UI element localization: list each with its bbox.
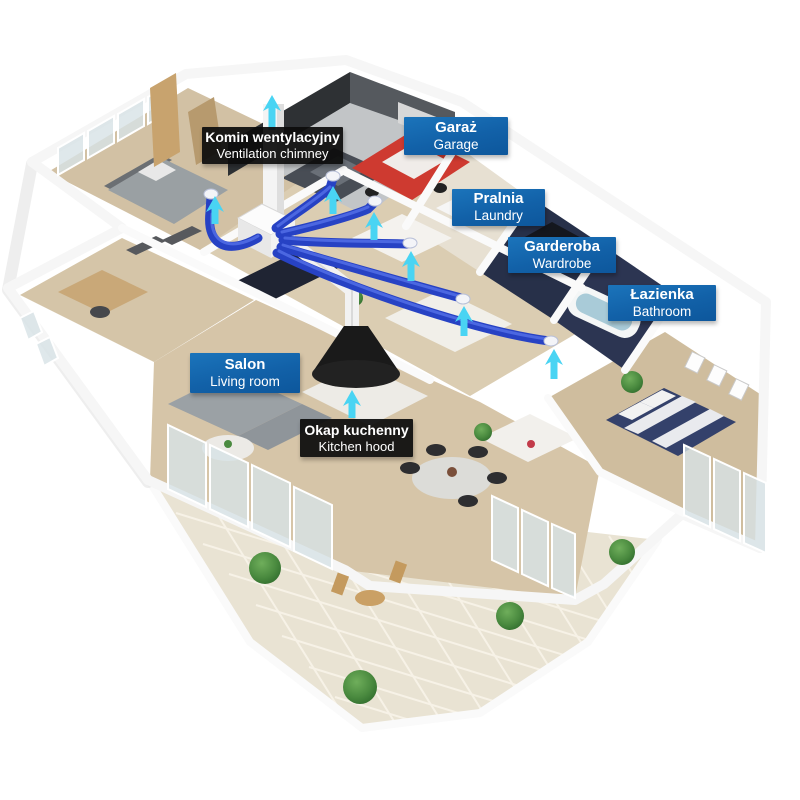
bathroom-label-pl: Łazienka <box>630 286 693 304</box>
bathroom-label-en: Bathroom <box>633 304 692 320</box>
laundry-label-en: Laundry <box>474 208 523 224</box>
patio-bush <box>609 539 635 565</box>
living-room-label-en: Living room <box>210 374 280 390</box>
bathroom-plant <box>621 371 643 393</box>
wardrobe-label-en: Wardrobe <box>533 256 592 272</box>
dining-chair <box>458 495 478 507</box>
patio-bush <box>343 670 377 704</box>
kitchen-hood-label: Okap kuchenny Kitchen hood <box>300 419 413 457</box>
table-centerpiece <box>447 467 457 477</box>
kitchen-hood-label-pl: Okap kuchenny <box>304 422 408 439</box>
laundry-label-pl: Pralnia <box>473 190 523 208</box>
patio-bush <box>496 602 524 630</box>
garage-label-en: Garage <box>433 137 478 153</box>
garage-label-pl: Garaż <box>435 119 477 137</box>
chimney-label: Komin wentylacyjny Ventilation chimney <box>202 127 343 164</box>
dining-chair <box>487 472 507 484</box>
house-3d-render <box>0 0 800 800</box>
dining-table <box>412 457 492 499</box>
office-chair <box>90 306 110 318</box>
chimney-label-pl: Komin wentylacyjny <box>205 129 340 146</box>
patio-bush <box>249 552 281 584</box>
floorplan-ventilation-figure: Komin wentylacyjny Ventilation chimney G… <box>0 0 800 800</box>
dining-chair <box>400 462 420 474</box>
wardrobe-label: Garderoba Wardrobe <box>508 237 616 273</box>
duct-outlet <box>403 238 417 248</box>
table-plant <box>224 440 232 448</box>
laundry-label: Pralnia Laundry <box>452 189 545 226</box>
duct-outlet <box>456 294 470 304</box>
dining-chair <box>426 444 446 456</box>
patio-table <box>355 590 385 606</box>
wardrobe-label-pl: Garderoba <box>524 238 600 256</box>
duct-outlet <box>544 336 558 346</box>
kitchen-hood-label-en: Kitchen hood <box>319 439 395 455</box>
living-room-label-pl: Salon <box>225 356 266 374</box>
dining-chair <box>468 446 488 458</box>
dining-plant <box>474 423 492 441</box>
curtain <box>150 73 180 167</box>
flower-vase <box>527 440 535 448</box>
kitchen-hood-rim <box>312 360 400 388</box>
duct-outlet <box>204 189 218 199</box>
bathroom-label: Łazienka Bathroom <box>608 285 716 321</box>
duct-outlet <box>368 196 382 206</box>
chimney-label-en: Ventilation chimney <box>216 146 328 162</box>
living-room-label: Salon Living room <box>190 353 300 393</box>
garage-label: Garaż Garage <box>404 117 508 155</box>
airflow-up-arrow-bathroom <box>545 349 563 379</box>
duct-outlet <box>326 171 340 181</box>
